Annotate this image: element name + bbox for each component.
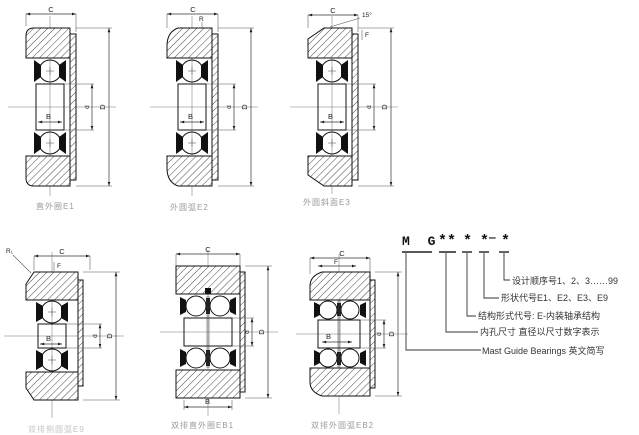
dim-label-c: C [59, 247, 65, 256]
dim-label-b: B [328, 112, 333, 121]
bearing-drawing-e9: R₁ C F B d D [4, 244, 128, 422]
dim-label-r: R [199, 16, 204, 23]
dim-label-b: B [46, 112, 51, 121]
angle-label: 15° [362, 11, 372, 19]
bearing-figure-e9: R₁ C F B d D [4, 244, 128, 427]
dim-label-r1: R₁ [6, 248, 14, 255]
dim-label-d-outer: D [387, 331, 396, 337]
dim-label-d-outer: D [257, 329, 266, 335]
bearing-drawing-eb2: C F B d D [296, 250, 414, 418]
figure-caption-e2: 外圆弧E2 [170, 202, 209, 213]
dim-label-d-inner: d [84, 105, 91, 109]
bearing-drawing-e2: C R B d D [150, 4, 262, 200]
dim-label-d-outer: D [98, 104, 107, 110]
dim-label-b: B [205, 397, 210, 406]
bearing-drawing-eb1: C d D B [160, 244, 284, 420]
dim-label-d-inner: d [92, 334, 99, 338]
bearing-figure-e2: C R B d D [150, 4, 262, 205]
dim-label-f: F [365, 32, 369, 39]
bearing-drawing-e1: C B d D [8, 4, 120, 200]
figure-caption-e1: 直外圈E1 [36, 201, 75, 212]
dim-label-d-inner: d [244, 330, 251, 334]
figure-caption-eb1: 双排直外圈EB1 [171, 420, 234, 431]
dim-label-b: B [46, 334, 51, 343]
dim-label-d-inner: d [366, 105, 373, 109]
dim-label-c: C [330, 6, 336, 15]
dim-label-f: F [334, 259, 338, 266]
dim-label-d-outer: D [380, 104, 389, 110]
dim-label-b: B [326, 332, 331, 341]
dim-label-c: C [339, 250, 345, 258]
bearing-diagram-sheet: C B d D 直外圈E1 C R [0, 0, 639, 435]
dim-label-d-inner: d [226, 105, 233, 109]
code-line-seq: 设计顺序号1、2、3……99 [512, 274, 618, 287]
code-line-structure: 结构形式代号: E-内装轴承结构 [478, 309, 600, 322]
figure-caption-e3: 外圆斜面E3 [303, 197, 351, 208]
dim-label-d-outer: D [240, 104, 249, 110]
bearing-figure-eb2: C F B d D [296, 250, 414, 423]
dim-label-b: B [188, 112, 193, 121]
bearing-figure-e1: C B d D [8, 4, 120, 205]
figure-caption-e9: 双排侧圆弧E9 [28, 424, 85, 435]
bearing-figure-e3: C 15° F B d D [290, 6, 402, 201]
figure-caption-eb2: 双排外圆弧EB2 [311, 420, 374, 431]
code-line-shape: 形状代号E1、E2、E3、E9 [501, 291, 608, 304]
dim-label-c: C [205, 245, 211, 254]
code-line-brand: Mast Guide Bearings 英文简写 [482, 344, 605, 357]
dim-label-d-outer: D [105, 333, 114, 339]
dim-label-c: C [48, 5, 54, 14]
dim-label-c: C [190, 5, 196, 14]
code-line-bore: 内孔尺寸 直径以尺寸数字表示 [480, 325, 600, 338]
dim-label-f: F [57, 263, 61, 270]
dim-label-d-inner: d [376, 332, 383, 336]
bearing-figure-eb1: C d D B [160, 244, 284, 425]
bearing-drawing-e3: C 15° F B d D [290, 6, 402, 196]
